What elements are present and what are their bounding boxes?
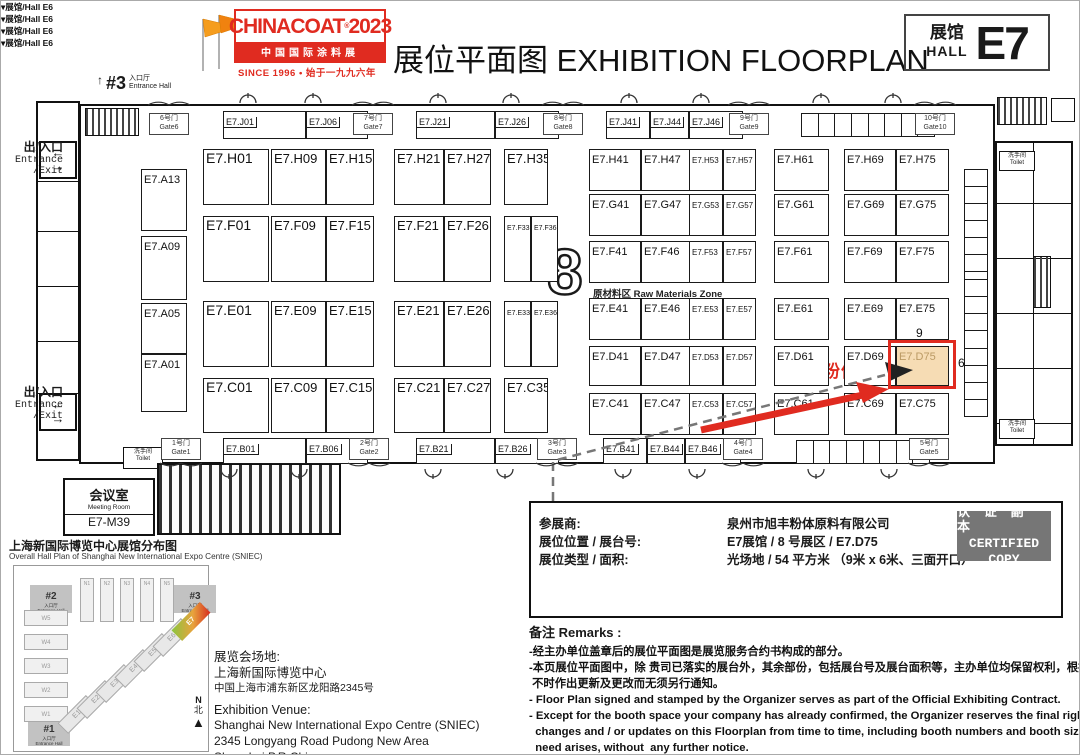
booth-label: E7.A05 — [142, 308, 182, 320]
booth-label: E7.H53 — [690, 156, 721, 165]
small-booth-cell — [797, 441, 814, 463]
minimap-hall-n3: N3 — [120, 578, 134, 622]
booth-label: E7.D57 — [724, 353, 755, 362]
booth-label: E7.J41 — [607, 117, 640, 128]
booth-label: E7.C61 — [775, 398, 816, 410]
booth-label: E7.C47 — [642, 398, 683, 410]
small-booth-cell — [802, 114, 819, 136]
booth-label: E7.J06 — [307, 117, 340, 128]
door-arc-icon — [885, 93, 901, 103]
booth-E7.B01: E7.B01 — [223, 438, 306, 464]
booth-label: E7.G47 — [642, 199, 683, 211]
booth-label: E7.E01 — [204, 302, 254, 318]
small-booth-cell — [965, 204, 987, 221]
booth-E7.G69: E7.G69 — [844, 194, 896, 236]
booth-E7.A05: E7.A05 — [141, 303, 187, 354]
booth-E7.H27: E7.H27 — [444, 149, 491, 205]
gate-gate6: 6号门Gate6 — [149, 113, 189, 135]
booth-label: E7.H61 — [775, 154, 816, 166]
booth-label: E7.C21 — [395, 380, 442, 395]
door-arc-icon — [615, 469, 631, 479]
booth-label: E7.F21 — [395, 218, 441, 233]
booth-E7.D61: E7.D61 — [774, 346, 829, 386]
booth-label: E7.F01 — [204, 217, 253, 233]
booth-E7.E36: E7.E36 — [531, 301, 558, 367]
booth-label: E7.E26 — [445, 303, 491, 318]
booth-E7.B21: E7.B21 — [416, 438, 495, 464]
booth-E7.E09: E7.E09 — [271, 301, 326, 367]
exhibitor-info-box: 参展商:泉州市旭丰粉体原料有限公司 展位位置 / 展台号:E7展馆 / 8 号展… — [529, 501, 1063, 618]
certified-copy-stamp: 认 证 副 本 CERTIFIED COPY — [957, 511, 1051, 561]
booth-label: E7.B01 — [224, 444, 259, 455]
door-arc-icon — [497, 469, 513, 479]
small-booth-cell — [819, 114, 836, 136]
booth-E7.H57: E7.H57 — [723, 149, 756, 191]
booth-E7.E15: E7.E15 — [326, 301, 374, 367]
booth-E7.F69: E7.F69 — [844, 241, 896, 283]
booth-E7.H15: E7.H15 — [326, 149, 374, 205]
booth-E7.F61: E7.F61 — [774, 241, 829, 283]
door-arc-icon — [430, 93, 446, 103]
small-booth-cell — [965, 314, 987, 331]
hall-e6-label: ▾展馆/Hall E6 — [1, 1, 1080, 13]
toilet-top-right: 洗手间Toilet — [999, 151, 1035, 171]
small-booth-cell — [835, 114, 852, 136]
floorplan-page: CHINACOAT®2023 中国国际涂料展 SINCE 1996 • 始于一九… — [0, 0, 1080, 755]
booth-label: E7.B44 — [648, 444, 683, 455]
booth-label: E7.F15 — [327, 218, 373, 233]
door-arc-icon — [693, 93, 709, 103]
info-row-location: 展位位置 / 展台号:E7展馆 / 8 号展区 / E7.D75 — [539, 531, 641, 550]
booth-E7.C61: E7.C61 — [774, 393, 829, 435]
small-booth-cell — [869, 114, 886, 136]
booth-label: E7.H69 — [845, 154, 886, 166]
dimension-depth: 6 — [958, 356, 965, 370]
exit-label-bottom: 出/入口 Entrance /Exit — [1, 386, 63, 423]
small-booth-cell — [965, 280, 987, 297]
booth-label: E7.G75 — [897, 199, 938, 211]
booth-E7.E69: E7.E69 — [844, 298, 896, 340]
booth-label: E7.A01 — [142, 359, 182, 371]
booth-E7.F57: E7.F57 — [723, 241, 756, 283]
minimap-hall-n4: N4 — [140, 578, 154, 622]
small-booth-cell — [880, 441, 897, 463]
gate-gate1: 1号门Gate1 — [161, 438, 201, 460]
booth-E7.C09: E7.C09 — [271, 378, 326, 433]
booth-E7.E21: E7.E21 — [394, 301, 444, 367]
booth-label: E7.D47 — [642, 351, 683, 363]
door-arc-icon — [305, 93, 321, 103]
small-booth-cell — [965, 255, 987, 272]
hall-e6-label: ▾展馆/Hall E6 — [1, 37, 1080, 49]
booth-label: E7.F41 — [590, 246, 629, 258]
minimap-hall-w4: W4 — [24, 634, 68, 650]
booth-E7.H21: E7.H21 — [394, 149, 444, 205]
booth-label: E7.H47 — [642, 154, 683, 166]
venue-zh-address: 中国上海市浦东新区龙阳路2345号 — [214, 682, 524, 696]
door-arc-icon — [503, 93, 519, 103]
booth-E7.F01: E7.F01 — [203, 216, 269, 282]
booth-label: E7.B46 — [686, 444, 721, 455]
booth-label: E7.E57 — [724, 305, 754, 314]
booth-E7.H69: E7.H69 — [844, 149, 896, 191]
small-booth-cell — [830, 441, 847, 463]
booth-label: E7.B26 — [496, 444, 531, 455]
exit-label-top: 出/入口 Entrance /Exit — [1, 141, 63, 178]
small-booth-strip-4 — [964, 279, 988, 417]
small-booth-cell — [965, 383, 987, 400]
booth-E7.D53: E7.D53 — [689, 346, 723, 386]
booth-E7.H47: E7.H47 — [641, 149, 696, 191]
booth-label: E7.B06 — [307, 444, 342, 455]
venue-en-title: Exhibition Venue: — [214, 702, 524, 718]
booth-label: E7.F53 — [690, 248, 720, 257]
small-booth-cell — [965, 297, 987, 314]
booth-label: E7.E41 — [590, 303, 630, 315]
booth-label: E7.A13 — [142, 174, 182, 186]
booth-label: E7.F46 — [642, 246, 681, 258]
booth-label: E7.C75 — [897, 398, 938, 410]
booth-E7.H09: E7.H09 — [271, 149, 326, 205]
booth-E7.C27: E7.C27 — [444, 378, 491, 433]
booth-E7.E41: E7.E41 — [589, 298, 641, 340]
small-booth-cell — [965, 170, 987, 187]
booth-label: E7.E69 — [845, 303, 885, 315]
small-booth-cell — [965, 400, 987, 416]
dimension-width: 9 — [916, 326, 923, 340]
booth-label: E7.H75 — [897, 154, 938, 166]
toilet-bottom-right: 洗手间Toilet — [999, 419, 1035, 439]
booth-E7.G53: E7.G53 — [689, 194, 723, 236]
booth-label: E7.E46 — [642, 303, 682, 315]
booth-label: E7.E15 — [327, 303, 374, 318]
booth-label: E7.F09 — [272, 218, 318, 233]
booth-label: E7.J26 — [496, 117, 529, 128]
booth-label: E7.E75 — [897, 303, 937, 315]
booth-E7.A13: E7.A13 — [141, 169, 187, 231]
booth-E7.F33: E7.F33 — [504, 216, 531, 282]
booth-E7.C53: E7.C53 — [689, 393, 723, 435]
booth-label: E7.C27 — [445, 380, 491, 395]
booth-label: E7.G61 — [775, 199, 816, 211]
small-booth-cell — [965, 238, 987, 255]
venue-zh-name: 上海新国际博览中心 — [214, 665, 524, 681]
hall-e6-label: ▾展馆/Hall E6 — [1, 13, 1080, 25]
booth-label: E7.F26 — [445, 218, 491, 233]
floorplan: ←→ ←→ 洗手间Toilet 洗手间Toilet 洗手间Toilet 会议室 … — [1, 1, 1080, 541]
entrance-hall-3-label: ↑ #3 入口厅Entrance Hall — [97, 73, 171, 94]
booth-E7.B41: E7.B41 — [603, 438, 647, 464]
booth-E7.G75: E7.G75 — [896, 194, 949, 236]
info-row-exhibitor: 参展商:泉州市旭丰粉体原料有限公司 — [539, 513, 581, 532]
door-arc-icon — [689, 469, 705, 479]
booth-E7.F46: E7.F46 — [641, 241, 696, 283]
booth-label: E7.B41 — [604, 444, 639, 455]
service-area — [157, 463, 341, 535]
info-row-type: 展位类型 / 面积:光场地 / 54 平方米 （9米 x 6米、三面开口） — [539, 549, 629, 568]
door-arc-icon — [881, 469, 897, 479]
minimap-hall-n1: N1 — [80, 578, 94, 622]
booth-E7.J01: E7.J01 — [223, 111, 306, 139]
booth-E7.H61: E7.H61 — [774, 149, 829, 191]
booth-label: E7.H01 — [204, 150, 255, 166]
booth-label: E7.E21 — [395, 303, 442, 318]
venue-en-name: Shanghai New International Expo Centre (… — [214, 718, 524, 734]
booth-E7.C69: E7.C69 — [844, 393, 896, 435]
booth-label: E7.C41 — [590, 398, 631, 410]
small-booth-strip-3 — [964, 169, 988, 289]
booth-label: E7.E33 — [505, 310, 531, 317]
booth-label: E7.C57 — [724, 400, 755, 409]
booth-E7.H41: E7.H41 — [589, 149, 641, 191]
booth-label: E7.G69 — [845, 199, 886, 211]
booth-E7.H75: E7.H75 — [896, 149, 949, 191]
venue-en-address: 2345 Longyang Road Pudong New Area Shang… — [214, 734, 524, 755]
small-booth-cell — [847, 441, 864, 463]
remark-line: changes and / or updates on this Floorpl… — [529, 724, 1075, 740]
remark-line: - Except for the booth space your compan… — [529, 708, 1075, 724]
minimap-hall-n5: N5 — [160, 578, 174, 622]
small-booth-cell — [965, 349, 987, 366]
booth-label: E7.E09 — [272, 303, 319, 318]
booth-E7.A01: E7.A01 — [141, 354, 187, 412]
remarks-section: 备注 Remarks : -经主办单位盖章后的展位平面图是展览服务合约书构成的部… — [529, 622, 1075, 755]
booth-E7.B44: E7.B44 — [647, 438, 685, 464]
minimap-hall-w5: W5 — [24, 610, 68, 626]
booth-E7.E57: E7.E57 — [723, 298, 756, 340]
booth-label: E7.D61 — [775, 351, 816, 363]
booth-label: E7.J21 — [417, 117, 450, 128]
booth-E7.A09: E7.A09 — [141, 236, 187, 300]
booth-E7.F41: E7.F41 — [589, 241, 641, 283]
small-booth-cell — [864, 441, 881, 463]
booth-E7.E01: E7.E01 — [203, 301, 269, 367]
booth-label: E7.A09 — [142, 241, 182, 253]
booth-E7.F36: E7.F36 — [531, 216, 558, 282]
booth-E7.H01: E7.H01 — [203, 149, 269, 205]
booth-E7.G47: E7.G47 — [641, 194, 696, 236]
booth-label: E7.E53 — [690, 305, 720, 314]
booth-label: E7.E61 — [775, 303, 815, 315]
booth-label: E7.F61 — [775, 246, 814, 258]
booth-E7.C41: E7.C41 — [589, 393, 641, 435]
booth-E7.F26: E7.F26 — [444, 216, 491, 282]
booth-label: E7.G57 — [724, 201, 755, 210]
minimap-hall-w2: W2 — [24, 682, 68, 698]
booth-E7.F75: E7.F75 — [896, 241, 949, 283]
remark-line: need arises, without any further notice. — [529, 740, 1075, 755]
booth-label: E7.F75 — [897, 246, 936, 258]
booth-label: E7.C15 — [327, 380, 374, 395]
booth-label: E7.F69 — [845, 246, 884, 258]
booth-label: E7.H41 — [590, 154, 631, 166]
minimap-hall-w3: W3 — [24, 658, 68, 674]
booth-E7.C57: E7.C57 — [723, 393, 756, 435]
booth-E7.C01: E7.C01 — [203, 378, 269, 433]
booth-E7.E33: E7.E33 — [504, 301, 531, 367]
booth-label: E7.D53 — [690, 353, 721, 362]
booth-E7.G57: E7.G57 — [723, 194, 756, 236]
gate-gate9: 9号门Gate9 — [729, 113, 769, 135]
booth-E7.F15: E7.F15 — [326, 216, 374, 282]
booth-label: E7.C35 — [505, 380, 548, 395]
booth-E7.C47: E7.C47 — [641, 393, 696, 435]
booth-label: E7.F57 — [724, 248, 754, 257]
booth-label: E7.H09 — [272, 151, 319, 166]
minimap-hall-n2: N2 — [100, 578, 114, 622]
booth-label: E7.J46 — [690, 117, 723, 128]
booth-label: E7.C69 — [845, 398, 886, 410]
remarks-title: 备注 Remarks : — [529, 622, 1075, 641]
gate-gate2: 2号门Gate2 — [349, 438, 389, 460]
top-right-room — [1051, 98, 1075, 122]
booth-label: E7.F36 — [532, 225, 558, 232]
gate-gate5: 5号门Gate5 — [909, 438, 949, 460]
booth-E7.C21: E7.C21 — [394, 378, 444, 433]
booth-label: E7.E36 — [532, 310, 558, 317]
booth-E7.G61: E7.G61 — [774, 194, 829, 236]
booth-E7.H53: E7.H53 — [689, 149, 723, 191]
booth-E7.D47: E7.D47 — [641, 346, 696, 386]
stairs-wing-icon — [1033, 256, 1051, 308]
hall-e6-label: ▾展馆/Hall E6 — [1, 25, 1080, 37]
meeting-room: 会议室 Meeting Room E7-M39 — [63, 478, 155, 536]
booth-E7.F09: E7.F09 — [271, 216, 326, 282]
small-booth-cell — [885, 114, 902, 136]
small-booth-cell — [814, 441, 831, 463]
booth-label: E7.C09 — [272, 380, 319, 395]
compass-icon: N 北 ▲ — [192, 696, 205, 730]
remark-line: - Floor Plan signed and stamped by the O… — [529, 692, 1075, 708]
booth-E7.D41: E7.D41 — [589, 346, 641, 386]
booth-E7.J21: E7.J21 — [416, 111, 495, 139]
booth-label: E7.H35 — [505, 151, 548, 166]
remark-line: -经主办单位盖章后的展位平面图是展览服务合约书构成的部分。 — [529, 644, 1075, 660]
door-arc-icon — [813, 93, 829, 103]
stairs-top-left-icon — [85, 108, 139, 136]
booth-E7.J44: E7.J44 — [650, 111, 689, 139]
gate-gate3: 3号门Gate3 — [537, 438, 577, 460]
small-booth-cell — [852, 114, 869, 136]
door-arc-icon — [808, 469, 824, 479]
booth-label: E7.G41 — [590, 199, 631, 211]
booth-label: E7.D69 — [845, 351, 886, 363]
booth-label: E7.C01 — [204, 379, 255, 395]
small-booth-cell — [965, 187, 987, 204]
highlight-booth-box — [888, 340, 956, 389]
booth-E7.J41: E7.J41 — [606, 111, 650, 139]
booth-E7.F53: E7.F53 — [689, 241, 723, 283]
venue-zh-title: 展览会场地: — [214, 649, 524, 665]
booth-label: E7.F33 — [505, 225, 531, 232]
booth-E7.H35: E7.H35 — [504, 149, 548, 205]
booth-E7.E53: E7.E53 — [689, 298, 723, 340]
remark-line: -本页展位平面图中，除 贵司已落实的展台外，其余部份，包括展台号及展台面积等，主… — [529, 660, 1075, 676]
door-arc-icon — [240, 93, 256, 103]
door-arc-icon — [621, 93, 637, 103]
minimap-title-en: Overall Hall Plan of Shanghai New Intern… — [9, 552, 262, 561]
booth-E7.C15: E7.C15 — [326, 378, 374, 433]
small-booth-cell — [965, 366, 987, 383]
booth-E7.G41: E7.G41 — [589, 194, 641, 236]
booth-label: E7.C53 — [690, 400, 721, 409]
stairs-top-right-icon — [997, 97, 1047, 125]
overall-hall-map: N 北 ▲ #2入口厅Entrance Hall#3入口厅Entrance Ha… — [13, 565, 209, 752]
booth-label: E7.B21 — [417, 444, 452, 455]
small-booth-cell — [965, 221, 987, 238]
gate-gate10: 10号门Gate10 — [915, 113, 955, 135]
booth-label: E7.G53 — [690, 201, 721, 210]
gate-gate4: 4号门Gate4 — [723, 438, 763, 460]
booth-E7.C35: E7.C35 — [504, 378, 548, 433]
booth-label: E7.H15 — [327, 151, 374, 166]
booth-label: E7.J44 — [651, 117, 684, 128]
booth-label: E7.J01 — [224, 117, 257, 128]
minimap-entrance-2: #2入口厅Entrance Hall — [30, 585, 72, 613]
door-arc-icon — [425, 469, 441, 479]
booth-E7.E61: E7.E61 — [774, 298, 829, 340]
remark-line: 不时作出更新及更改而无须另行通知。 — [529, 676, 1075, 692]
booth-label: E7.H27 — [445, 151, 491, 166]
booth-E7.C75: E7.C75 — [896, 393, 949, 435]
booth-label: E7.D41 — [590, 351, 631, 363]
small-booth-cell — [965, 331, 987, 348]
booth-label: E7.H21 — [395, 151, 442, 166]
booth-E7.D57: E7.D57 — [723, 346, 756, 386]
booth-E7.F21: E7.F21 — [394, 216, 444, 282]
gate-gate7: 7号门Gate7 — [353, 113, 393, 135]
booth-label: E7.H57 — [724, 156, 755, 165]
venue-block: 展览会场地: 上海新国际博览中心 中国上海市浦东新区龙阳路2345号 Exhib… — [214, 649, 524, 755]
booth-E7.E26: E7.E26 — [444, 301, 491, 367]
booth-E7.E46: E7.E46 — [641, 298, 696, 340]
gate-gate8: 8号门Gate8 — [543, 113, 583, 135]
